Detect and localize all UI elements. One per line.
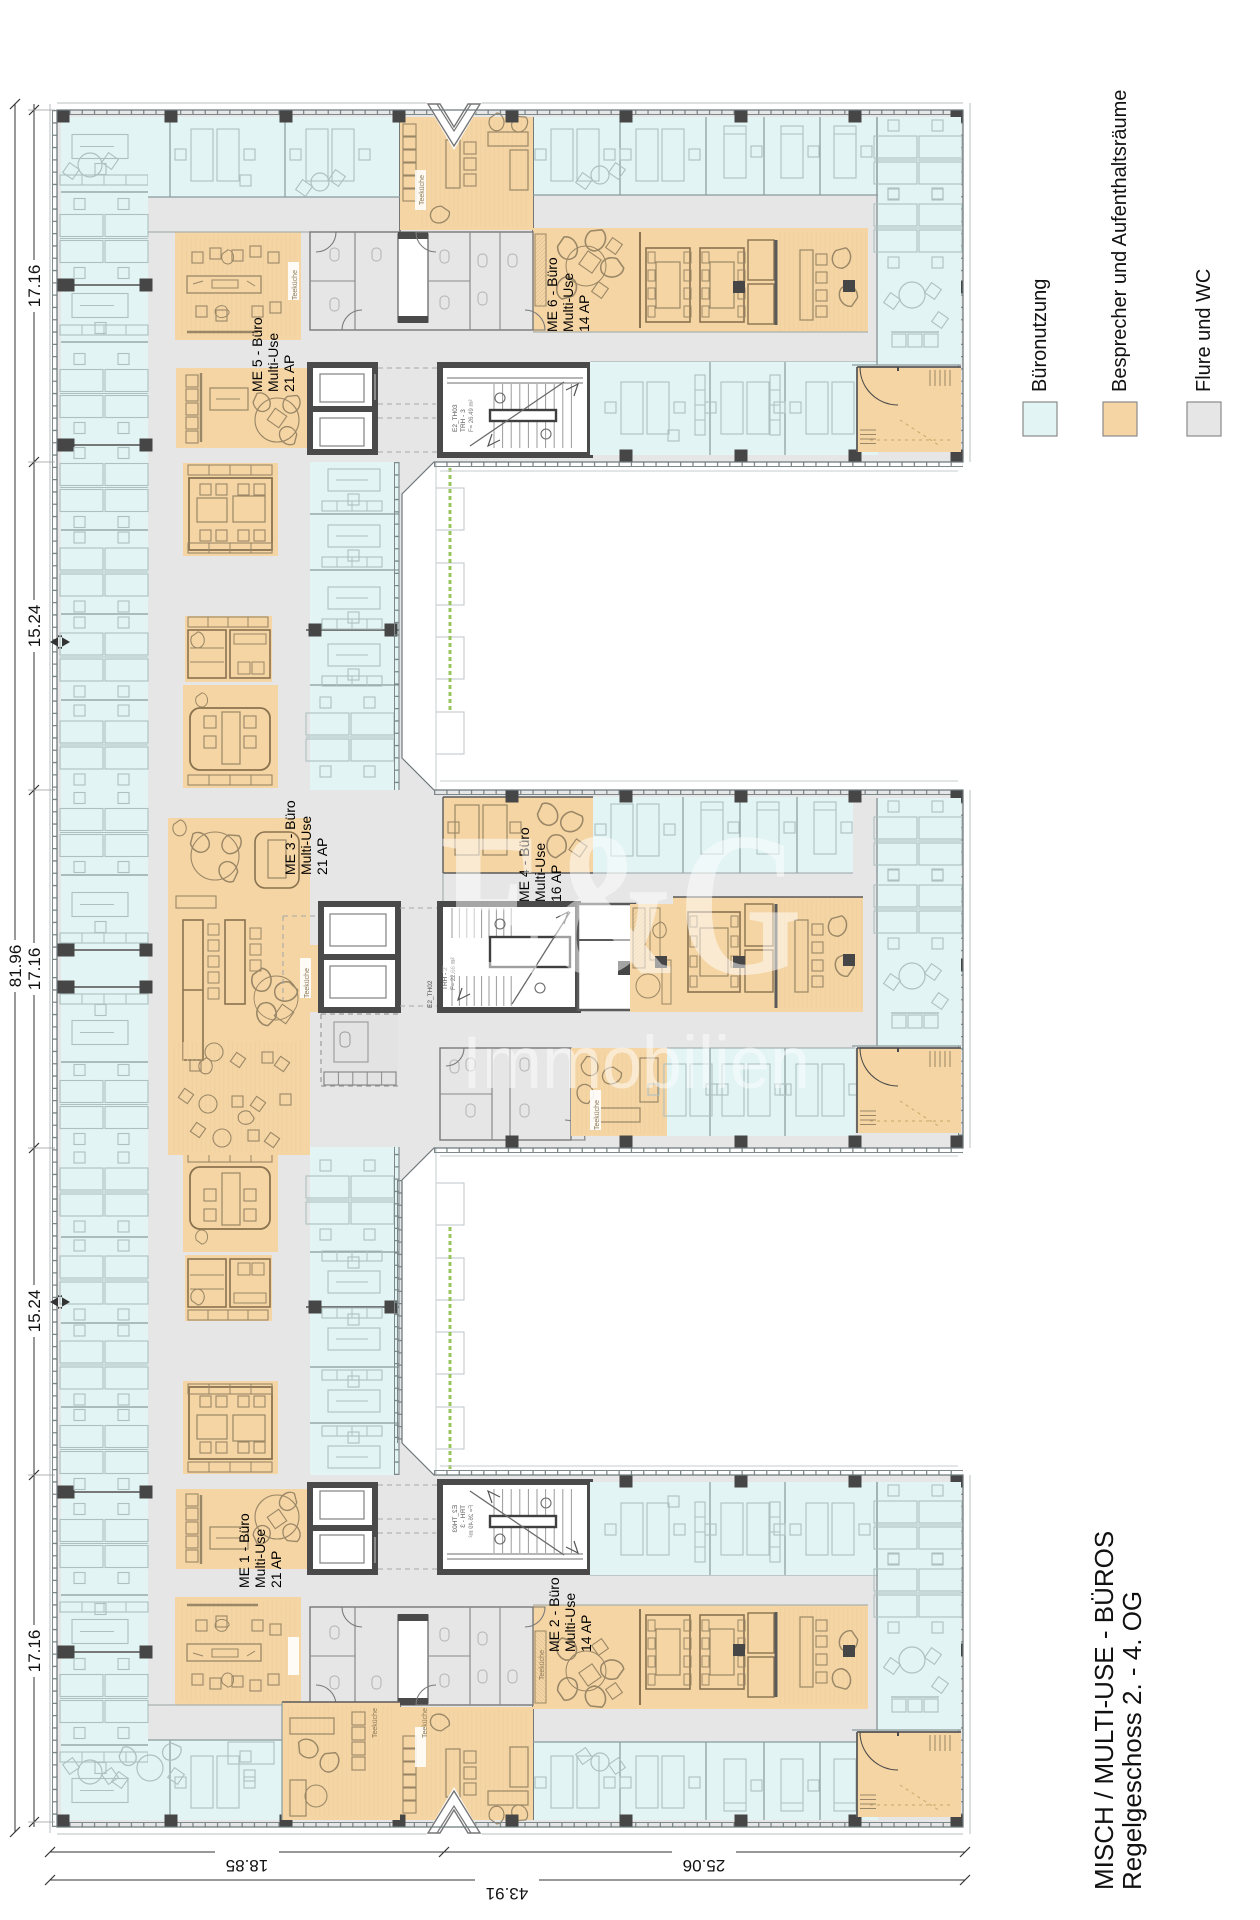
svg-text:14 AP: 14 AP xyxy=(576,295,592,332)
svg-text:17.16: 17.16 xyxy=(25,1630,44,1673)
svg-text:ME 5 - Büro: ME 5 - Büro xyxy=(249,317,265,392)
svg-text:Teeküche: Teeküche xyxy=(292,270,299,300)
svg-text:Teeküche: Teeküche xyxy=(304,968,311,998)
svg-text:Immobilien: Immobilien xyxy=(462,1021,810,1104)
svg-text:Besprecher und Aufenthaltsräum: Besprecher und Aufenthaltsräume xyxy=(1109,90,1131,392)
svg-text:Flure und WC: Flure und WC xyxy=(1193,269,1215,392)
svg-text:Regelgeschoss 2. - 4. OG: Regelgeschoss 2. - 4. OG xyxy=(1117,1591,1147,1890)
svg-text:Teeküche: Teeküche xyxy=(539,1650,546,1680)
svg-text:Teeküche: Teeküche xyxy=(419,175,426,205)
svg-text:Teeküche: Teeküche xyxy=(422,1708,429,1738)
svg-text:TRH - 3: TRH - 3 xyxy=(460,409,467,432)
svg-text:Multi-Use: Multi-Use xyxy=(298,816,314,875)
svg-text:15.24: 15.24 xyxy=(25,1290,44,1333)
svg-text:Multi-Use: Multi-Use xyxy=(562,1593,578,1652)
svg-text:Büronutzung: Büronutzung xyxy=(1029,279,1051,392)
svg-text:ME 1 - Büro: ME 1 - Büro xyxy=(236,1513,252,1588)
svg-text:ME 6 - Büro: ME 6 - Büro xyxy=(544,257,560,332)
svg-text:Multi-Use: Multi-Use xyxy=(252,1529,268,1588)
svg-text:Teeküche: Teeküche xyxy=(372,1708,379,1738)
svg-text:Teeküche: Teeküche xyxy=(594,1100,601,1130)
svg-text:E&G: E&G xyxy=(440,791,802,1018)
svg-text:E2_TH02: E2_TH02 xyxy=(427,980,434,1008)
svg-text:21 AP: 21 AP xyxy=(281,355,297,392)
svg-text:F= 26.49 m²: F= 26.49 m² xyxy=(469,399,475,432)
svg-text:E2_TH03: E2_TH03 xyxy=(452,404,459,432)
svg-text:MISCH / MULTI-USE - BÜROS: MISCH / MULTI-USE - BÜROS xyxy=(1089,1531,1119,1890)
svg-text:21 AP: 21 AP xyxy=(314,838,330,875)
svg-text:17.16: 17.16 xyxy=(25,948,44,991)
svg-text:18.85: 18.85 xyxy=(226,1856,269,1875)
svg-text:14 AP: 14 AP xyxy=(578,1615,594,1652)
svg-text:15.24: 15.24 xyxy=(25,605,44,648)
svg-text:ME 3 - Büro: ME 3 - Büro xyxy=(282,800,298,875)
svg-text:Multi-Use: Multi-Use xyxy=(560,273,576,332)
svg-text:25.06: 25.06 xyxy=(683,1856,726,1875)
svg-text:43.91: 43.91 xyxy=(486,1884,529,1903)
svg-text:21 AP: 21 AP xyxy=(268,1551,284,1588)
svg-text:Multi-Use: Multi-Use xyxy=(265,333,281,392)
svg-text:ME 2 - Büro: ME 2 - Büro xyxy=(546,1577,562,1652)
svg-text:17.16: 17.16 xyxy=(25,265,44,308)
